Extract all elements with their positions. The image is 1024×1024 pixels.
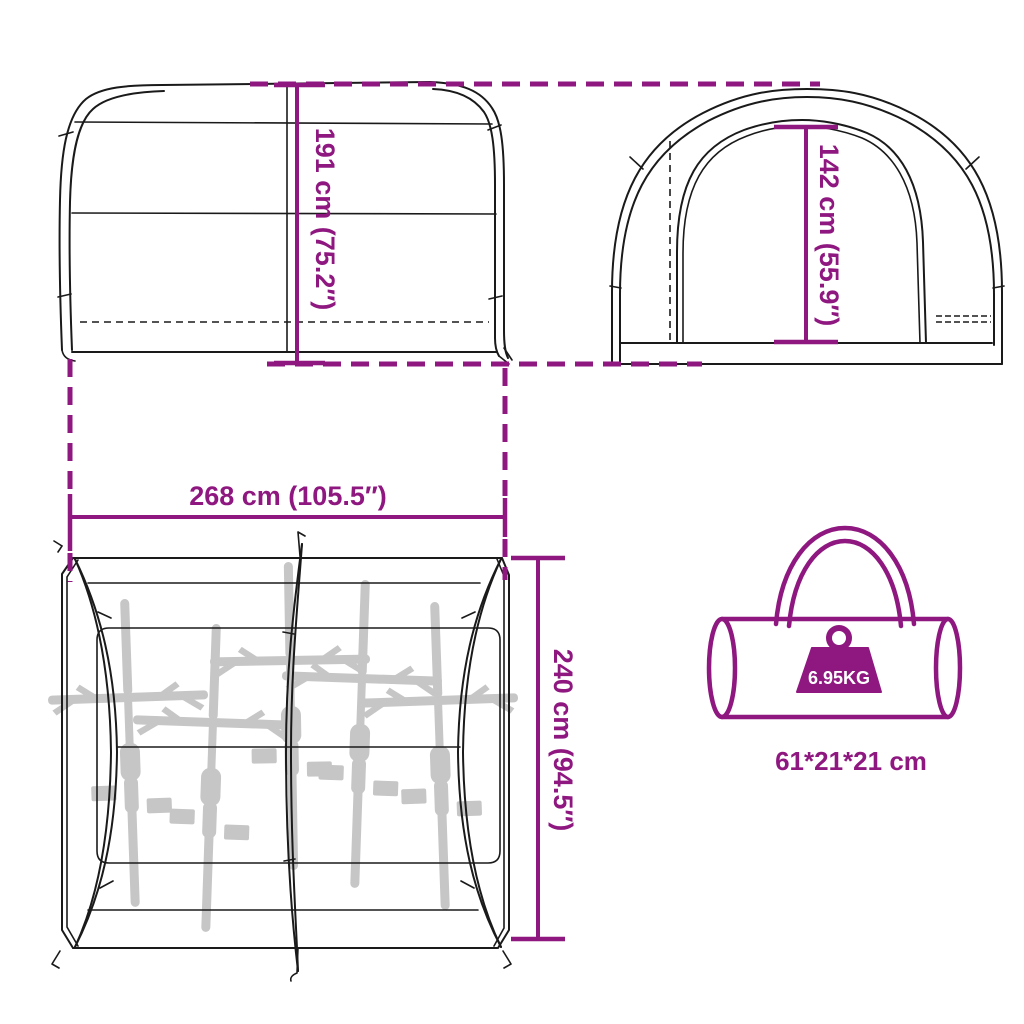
diagram-svg: 191 cm (75.2″) 142 cm (55.9″) 268 cm (10…: [0, 0, 1024, 1024]
depth-label: 240 cm (94.5″): [548, 649, 578, 832]
door-height-label: 142 cm (55.9″): [814, 144, 844, 327]
width-label: 268 cm (105.5″): [189, 481, 387, 511]
product-dimension-diagram: 191 cm (75.2″) 142 cm (55.9″) 268 cm (10…: [0, 0, 1024, 1024]
bag-weight-label: 6.95KG: [808, 668, 870, 688]
bike-icon: [126, 621, 297, 934]
side-height-label: 191 cm (75.2″): [310, 128, 340, 311]
tent-side-view: [58, 82, 512, 364]
carry-bag: [709, 528, 960, 717]
bag-size-label: 61*21*21 cm: [775, 746, 927, 776]
